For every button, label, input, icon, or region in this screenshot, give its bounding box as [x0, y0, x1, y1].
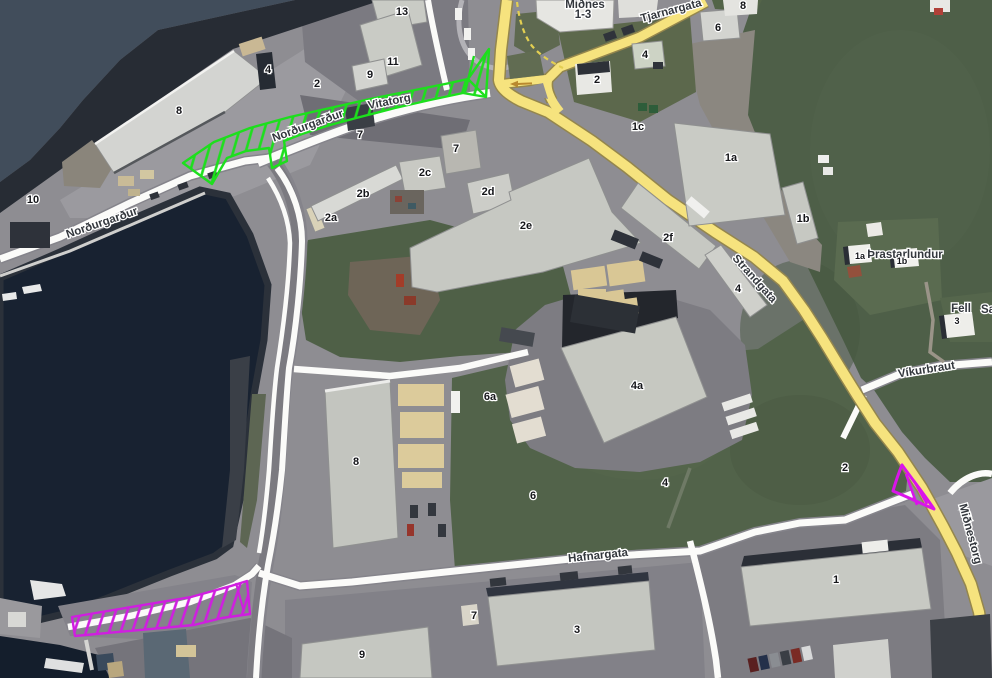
svg-text:4: 4 [662, 477, 669, 489]
svg-text:3: 3 [574, 624, 580, 636]
svg-text:9: 9 [367, 69, 373, 81]
svg-text:1c: 1c [632, 121, 644, 133]
svg-text:7: 7 [471, 610, 477, 622]
svg-text:10: 10 [27, 194, 39, 206]
svg-text:8: 8 [176, 105, 182, 117]
svg-text:4: 4 [265, 64, 272, 76]
svg-text:13: 13 [396, 6, 408, 18]
svg-text:2c: 2c [419, 167, 431, 179]
svg-text:2a: 2a [325, 212, 338, 224]
svg-text:1b: 1b [797, 213, 810, 225]
svg-text:Fell: Fell [951, 303, 971, 315]
svg-text:2d: 2d [482, 186, 495, 198]
svg-text:2f: 2f [663, 232, 673, 244]
svg-text:2: 2 [314, 78, 320, 90]
svg-text:6: 6 [715, 22, 721, 34]
svg-text:8: 8 [740, 0, 746, 12]
svg-text:4: 4 [642, 49, 649, 61]
svg-text:1b: 1b [897, 256, 908, 266]
svg-text:2: 2 [594, 74, 600, 86]
svg-text:6a: 6a [484, 391, 497, 403]
svg-text:7: 7 [357, 129, 363, 141]
svg-text:1: 1 [833, 574, 839, 586]
svg-text:1a: 1a [855, 251, 866, 261]
svg-text:1a: 1a [725, 152, 738, 164]
svg-text:Sa: Sa [981, 304, 992, 316]
svg-text:1-3: 1-3 [575, 9, 592, 21]
svg-text:2b: 2b [357, 188, 370, 200]
svg-text:7: 7 [453, 143, 459, 155]
svg-text:4: 4 [735, 283, 742, 295]
svg-text:9: 9 [359, 649, 365, 661]
svg-text:11: 11 [387, 56, 399, 68]
svg-text:8: 8 [353, 456, 359, 468]
svg-text:6: 6 [530, 490, 536, 502]
svg-text:2e: 2e [520, 220, 532, 232]
svg-text:4a: 4a [631, 380, 644, 392]
svg-text:3: 3 [954, 316, 959, 326]
svg-text:2: 2 [842, 462, 848, 474]
